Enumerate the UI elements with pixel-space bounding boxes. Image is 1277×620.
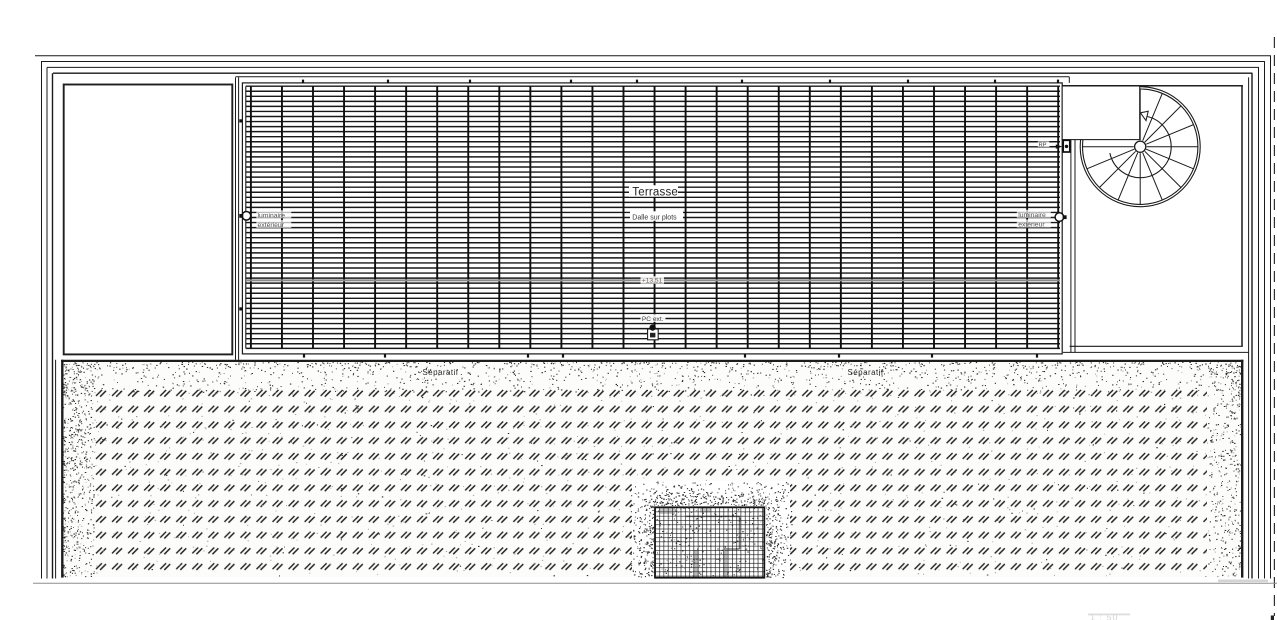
svg-text:extérieur: extérieur	[258, 222, 285, 229]
svg-text:luminaire: luminaire	[258, 213, 286, 220]
svg-text:Dalle sur plots: Dalle sur plots	[632, 214, 677, 221]
svg-text:+13,51: +13,51	[642, 278, 663, 285]
svg-text:PC ext.: PC ext.	[642, 316, 664, 323]
svg-text:Terrasse: Terrasse	[632, 186, 678, 198]
svg-text:luminaire: luminaire	[1018, 212, 1046, 219]
svg-text:Séparatif: Séparatif	[422, 368, 458, 377]
svg-text:Séparatif: Séparatif	[848, 368, 884, 377]
svg-text:extérieur: extérieur	[1018, 222, 1045, 229]
svg-text:RP: RP	[1039, 142, 1047, 148]
